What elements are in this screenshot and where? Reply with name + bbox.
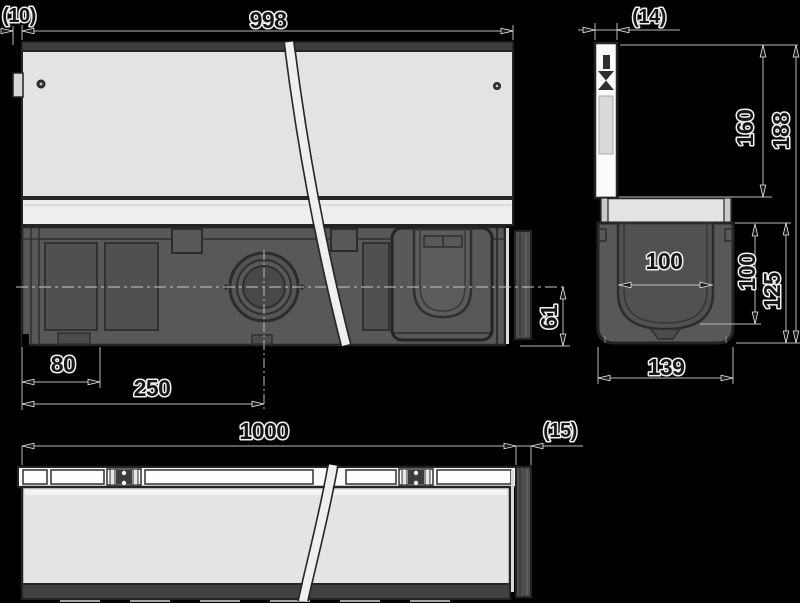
dim-plan-end-cap: (15) bbox=[543, 420, 577, 442]
dim-front-outlet-height: 61 bbox=[536, 304, 562, 329]
dim-front-left-end: (10) bbox=[2, 5, 36, 27]
front-cover-top-edge bbox=[22, 42, 513, 51]
dim-section-height-seat: 160 bbox=[732, 110, 758, 147]
edge-upstand bbox=[595, 43, 617, 198]
foot-slot-2 bbox=[252, 335, 272, 344]
plan-end-strip bbox=[516, 467, 531, 597]
locking-clip-1 bbox=[107, 469, 141, 485]
foot-notch bbox=[22, 334, 29, 346]
section-view: (14) 160 188 125 100 100 bbox=[578, 6, 800, 384]
coupling-gap bbox=[506, 228, 509, 344]
dim-front-length: 998 bbox=[250, 7, 288, 33]
body-top-lug-1 bbox=[172, 229, 202, 253]
section-cover bbox=[601, 198, 731, 224]
dim-section-inner-depth: 100 bbox=[734, 254, 760, 291]
front-cover-lower-strip bbox=[22, 199, 513, 225]
section-channel-body bbox=[598, 223, 733, 343]
dim-section-total-height: 188 bbox=[768, 112, 794, 150]
end-profile-overlay bbox=[392, 228, 492, 340]
front-left-tab bbox=[13, 73, 23, 97]
dim-front-outlet-offset-small: 80 bbox=[51, 351, 76, 377]
screw-left bbox=[37, 80, 45, 88]
front-view: 998 (10) 80 250 61 bbox=[1, 5, 570, 410]
dim-front-outlet-offset-large: 250 bbox=[134, 375, 171, 401]
plan-coupling-gap bbox=[511, 470, 514, 592]
plan-dimensions: 1000 (15) bbox=[22, 418, 583, 465]
dim-section-outer-width: 139 bbox=[648, 354, 685, 380]
dim-section-inner-width: 100 bbox=[646, 248, 683, 274]
dim-section-channel-height: 125 bbox=[759, 272, 785, 310]
plan-view: 1000 (15) bbox=[18, 418, 583, 601]
plan-top-strip bbox=[18, 467, 516, 487]
technical-drawing-canvas: 998 (10) 80 250 61 bbox=[0, 0, 800, 603]
dim-plan-length: 1000 bbox=[239, 418, 288, 444]
locking-clip-2 bbox=[399, 469, 433, 485]
coupling-block bbox=[515, 231, 531, 339]
dim-section-edge-thickness: (14) bbox=[632, 6, 666, 28]
drainage-channel-drawing: 998 (10) 80 250 61 bbox=[0, 0, 800, 603]
front-cover-panel bbox=[22, 51, 513, 197]
foot-slot-1 bbox=[58, 333, 90, 344]
screw-right bbox=[494, 83, 501, 90]
body-top-lug-2 bbox=[331, 229, 357, 251]
plan-body bbox=[22, 487, 510, 601]
